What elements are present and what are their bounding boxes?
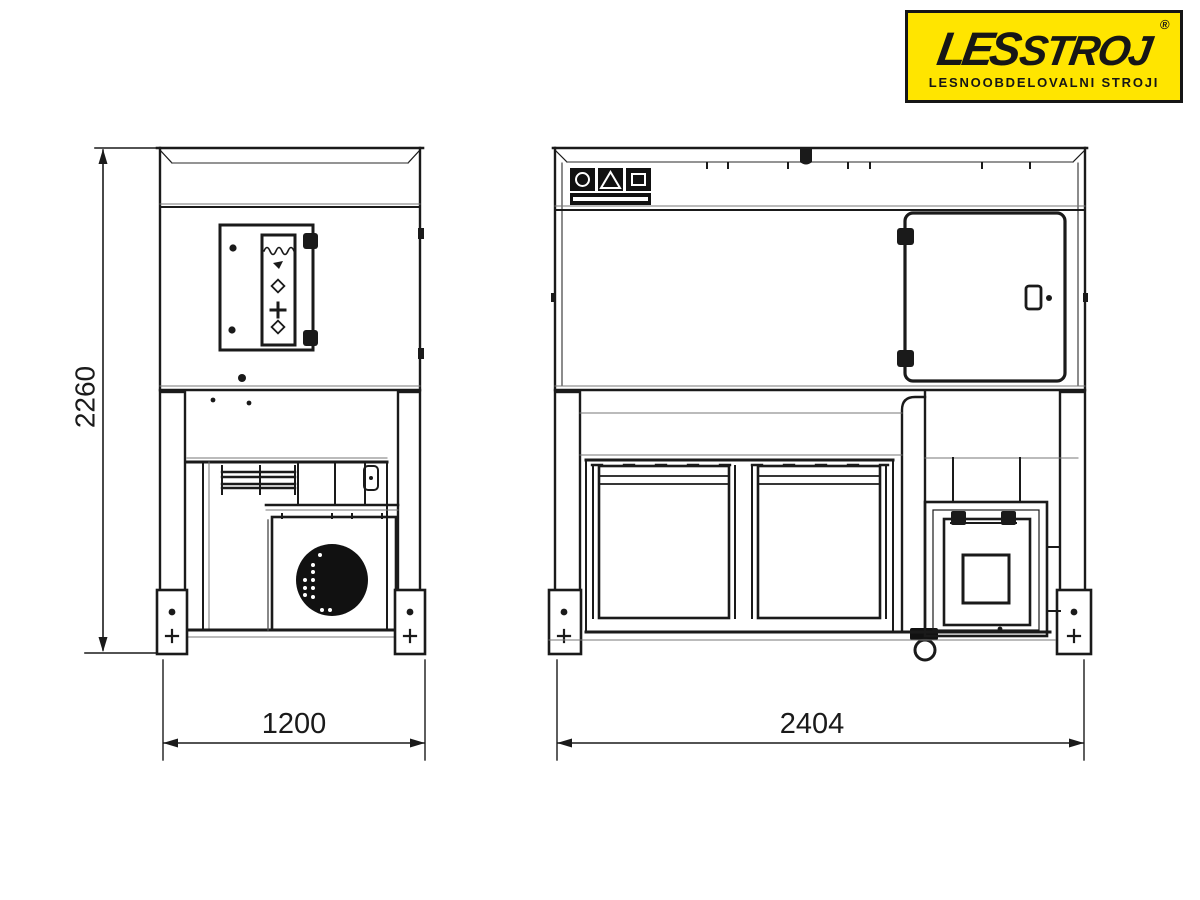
door-hinge-bottom xyxy=(897,350,914,367)
electrical-panel xyxy=(220,225,318,350)
switch-icon xyxy=(273,261,283,269)
leg-middle xyxy=(902,397,925,630)
technical-drawing-page: ® LES STROJ LESNOOBDELOVALNI STROJI 2260 xyxy=(0,0,1200,900)
indicator-icon-2 xyxy=(272,321,285,334)
dimension-width-side: 1200 xyxy=(163,660,425,760)
panel-hinge-bottom xyxy=(303,330,318,346)
filter-hinge-left xyxy=(951,511,966,525)
dimension-label-width-side: 1200 xyxy=(262,708,327,740)
lifting-bracket xyxy=(800,148,812,165)
warning-label-manual-icon xyxy=(626,168,651,191)
side-feet xyxy=(157,590,425,654)
foot-left xyxy=(549,590,581,654)
arrowhead-up xyxy=(99,149,108,164)
dimension-width-front: 2404 xyxy=(557,660,1084,760)
terminal-row-icon xyxy=(264,248,294,255)
warning-labels xyxy=(570,168,651,205)
inspection-opening xyxy=(963,555,1009,603)
side-cabinet-body xyxy=(157,148,424,390)
arrowhead-down xyxy=(99,637,108,652)
filter-panel xyxy=(944,519,1030,625)
foot-right xyxy=(395,590,425,654)
bin-right xyxy=(758,466,880,618)
indicator-icon xyxy=(272,280,285,293)
arrowhead-left xyxy=(163,739,178,748)
warning-label-electric-icon xyxy=(570,168,595,191)
side-hinge-mark-bottom xyxy=(418,348,424,359)
panel-hinge-top xyxy=(303,233,318,249)
door-lock xyxy=(1046,295,1052,301)
filter-compartment xyxy=(925,458,1078,636)
access-door xyxy=(897,213,1065,381)
screw xyxy=(238,374,246,382)
button-icon xyxy=(271,303,285,317)
dimension-label-height: 2260 xyxy=(69,366,100,428)
side-hinge-mark-top xyxy=(418,228,424,239)
dust-extractor-technical-drawing: 2260 xyxy=(0,0,1200,900)
foot-left xyxy=(157,590,187,654)
arrowhead-right xyxy=(1069,739,1084,748)
caster-wheel xyxy=(915,640,935,660)
bin-left xyxy=(599,466,729,618)
door-hinge-top xyxy=(897,228,914,245)
screw xyxy=(228,326,235,333)
door-handle xyxy=(1026,286,1041,309)
front-view: 2404 xyxy=(549,148,1091,760)
screw xyxy=(229,244,236,251)
collection-bins xyxy=(549,413,1055,640)
shelf-slats xyxy=(222,466,295,494)
dimension-height: 2260 xyxy=(69,148,158,653)
side-view: 2260 xyxy=(69,148,425,760)
arrowhead-left xyxy=(557,739,572,748)
fan-housing xyxy=(266,505,398,630)
dimension-label-width-front: 2404 xyxy=(780,708,845,740)
side-lower-frame xyxy=(160,392,420,652)
foot-right xyxy=(1057,590,1091,654)
front-legs xyxy=(549,392,1091,660)
filter-hinge-right xyxy=(1001,511,1016,525)
arrowhead-right xyxy=(410,739,425,748)
